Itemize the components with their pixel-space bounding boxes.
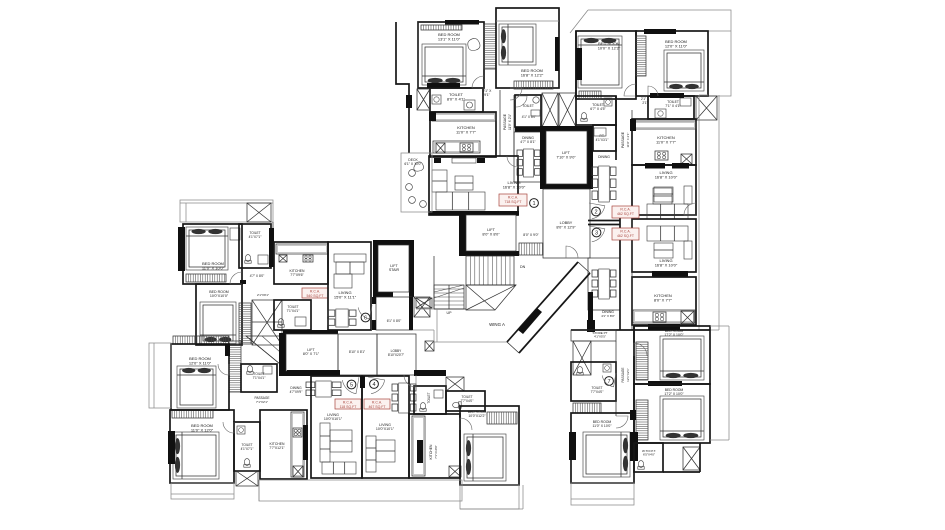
svg-text:4'1"X5'5": 4'1"X5'5": [594, 335, 606, 339]
svg-text:6'1" X 10'0": 6'1" X 10'0": [404, 162, 422, 166]
svg-text:7'1"X4'1": 7'1"X4'1": [287, 309, 300, 313]
svg-text:7'1"X4'1": 7'1"X4'1": [253, 376, 266, 380]
svg-text:8'10" X 8'1": 8'10" X 8'1": [349, 350, 365, 354]
svg-text:LIFT: LIFT: [562, 151, 570, 155]
svg-text:PASSAGE: PASSAGE: [621, 131, 625, 148]
svg-text:4: 4: [372, 382, 375, 388]
svg-text:8'0" X 9'0": 8'0" X 9'0": [523, 233, 539, 237]
svg-text:7'7"X4'0": 7'7"X4'0": [591, 390, 604, 394]
svg-text:R.C.A.: R.C.A.: [508, 195, 518, 199]
svg-text:4'1"X3'1": 4'1"X3'1": [596, 138, 609, 142]
svg-text:DINING: DINING: [598, 155, 610, 159]
svg-text:540 SQ.FT: 540 SQ.FT: [306, 294, 324, 298]
svg-text:11'0" X 7'7": 11'0" X 7'7": [656, 140, 677, 145]
svg-text:2: 2: [594, 210, 597, 216]
svg-text:R.C.A.: R.C.A.: [372, 400, 382, 404]
svg-text:1: 1: [532, 201, 535, 207]
svg-text:3: 3: [595, 231, 598, 237]
svg-text:12'0" X 11'0": 12'0" X 11'0": [665, 44, 688, 49]
svg-text:6'7" X 4'5": 6'7" X 4'5": [590, 107, 606, 111]
svg-text:8'0" X 7'7": 8'0" X 7'7": [654, 298, 673, 303]
svg-text:17'2" X 10'0": 17'2" X 10'0": [664, 392, 684, 396]
svg-text:R.C.A.: R.C.A.: [620, 207, 630, 211]
svg-text:11'9" X 2'1": 11'9" X 2'1": [626, 132, 630, 147]
svg-text:10'0"X10'1": 10'0"X10'1": [324, 417, 343, 421]
svg-text:WING A: WING A: [489, 322, 505, 327]
svg-text:7'7"X12'1": 7'7"X12'1": [269, 446, 285, 450]
svg-text:2'1": 2'1": [642, 101, 647, 105]
svg-text:R.C.A.: R.C.A.: [343, 400, 353, 404]
svg-text:UP: UP: [447, 311, 453, 315]
svg-text:KITCHEN: KITCHEN: [429, 444, 433, 459]
svg-text:7'7"X9'6": 7'7"X9'6": [290, 273, 304, 277]
svg-text:4'7" X 8'0": 4'7" X 8'0": [250, 274, 264, 278]
svg-text:LIFT: LIFT: [487, 228, 495, 232]
svg-text:8'0" X 8'0": 8'0" X 8'0": [482, 232, 500, 236]
svg-text:11'0" X 7'7": 11'0" X 7'7": [456, 130, 477, 135]
svg-text:16'8" X 12'2": 16'8" X 12'2": [521, 73, 544, 78]
svg-text:10'0" X 12'2": 10'0" X 12'2": [598, 46, 621, 51]
svg-text:8'10"X20'7": 8'10"X20'7": [388, 353, 404, 357]
svg-text:7'1"X2'1": 7'1"X2'1": [256, 400, 268, 404]
svg-text:13'1" X 11'0": 13'1" X 11'0": [438, 37, 461, 42]
svg-text:4'1"X7'1": 4'1"X7'1": [241, 447, 254, 451]
svg-text:12'1"X2'1": 12'1"X2'1": [626, 368, 630, 382]
svg-text:6'1" X 8'0": 6'1" X 8'0": [387, 319, 401, 323]
svg-text:4'7" X 8'1": 4'7" X 8'1": [520, 140, 536, 144]
svg-text:8'0" X 12'9": 8'0" X 12'9": [556, 225, 576, 229]
svg-text:11'0" X 10'0": 11'0" X 10'0": [593, 424, 613, 428]
svg-text:5: 5: [350, 383, 353, 389]
svg-text:7'1"X10'0": 7'1"X10'0": [434, 445, 438, 459]
svg-text:118 SQ.FT: 118 SQ.FT: [340, 405, 358, 409]
svg-text:16'8" X 10'0": 16'8" X 10'0": [655, 175, 678, 180]
svg-text:462 SQ.FT: 462 SQ.FT: [617, 234, 635, 238]
svg-text:PASSAGE: PASSAGE: [621, 368, 625, 383]
svg-text:8'0" X 4'1": 8'0" X 4'1": [447, 97, 466, 102]
svg-text:718 SQ.FT: 718 SQ.FT: [504, 200, 522, 204]
svg-text:6: 6: [364, 316, 367, 322]
svg-text:TOILET: TOILET: [522, 104, 534, 108]
svg-text:462 SQ.FT: 462 SQ.FT: [617, 212, 635, 216]
svg-text:TOILET: TOILET: [427, 392, 431, 403]
svg-text:4'7"X9'9": 4'7"X9'9": [290, 390, 303, 394]
svg-text:12'0" X 11'0": 12'0" X 11'0": [189, 361, 212, 366]
svg-text:17'2" X 10'0": 17'2" X 10'0": [664, 333, 684, 337]
svg-text:16'8" X 10'0": 16'8" X 10'0": [503, 185, 526, 190]
svg-text:7'10" X 9'0": 7'10" X 9'0": [556, 155, 576, 159]
svg-text:LOBBY: LOBBY: [560, 221, 573, 225]
svg-text:6'5"X4'0": 6'5"X4'0": [643, 453, 655, 457]
svg-text:PASSAGE: PASSAGE: [503, 113, 507, 130]
svg-text:7'1" X 4'1": 7'1" X 4'1": [665, 104, 681, 108]
svg-text:7'7"X4'0": 7'7"X4'0": [461, 399, 474, 403]
svg-text:16'8" X 10'0": 16'8" X 10'0": [655, 263, 678, 268]
svg-text:9'1": 9'1": [484, 93, 490, 97]
svg-text:467 SQ.FT: 467 SQ.FT: [368, 405, 386, 409]
svg-text:4'1"X7'1": 4'1"X7'1": [249, 235, 262, 239]
svg-text:10'0"X10'1": 10'0"X10'1": [376, 427, 395, 431]
svg-text:4'1" X 8'0": 4'1" X 8'0": [601, 314, 615, 318]
svg-text:2'1"X9'1": 2'1"X9'1": [257, 293, 269, 297]
svg-text:4'1" X 8'0": 4'1" X 8'0": [522, 115, 536, 119]
svg-text:STAIR: STAIR: [389, 268, 400, 272]
svg-text:R.C.A.: R.C.A.: [620, 229, 630, 233]
svg-text:8'0" X 7'1": 8'0" X 7'1": [303, 352, 320, 356]
svg-text:15'0" X 11'1": 15'0" X 11'1": [334, 295, 357, 300]
svg-text:10'0"X12'2": 10'0"X12'2": [468, 414, 486, 418]
svg-text:R.C.A.: R.C.A.: [310, 289, 320, 293]
svg-text:DN: DN: [520, 265, 526, 269]
svg-text:10'0"X10'0": 10'0"X10'0": [210, 294, 229, 298]
svg-text:11'9" X 2'1": 11'9" X 2'1": [508, 114, 512, 130]
